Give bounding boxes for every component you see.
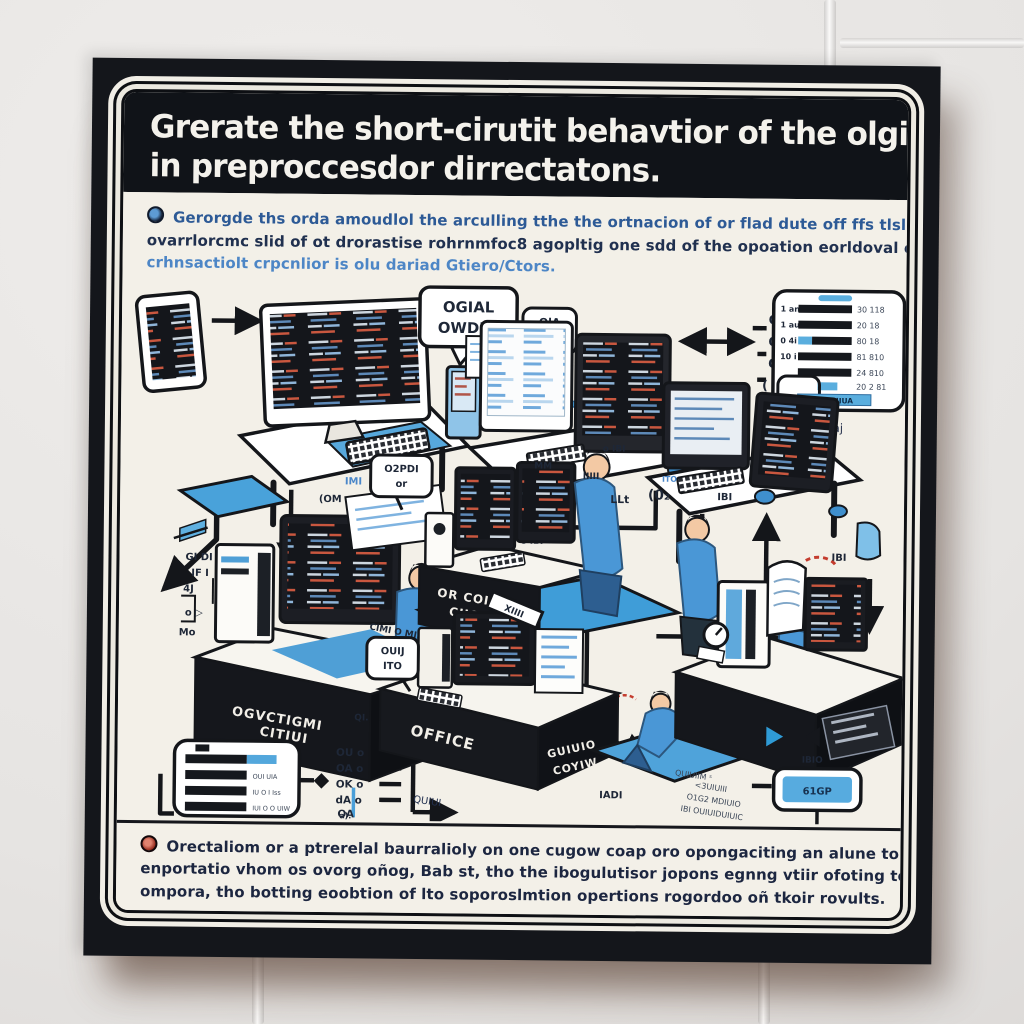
svg-text:OK o: OK o (336, 778, 364, 790)
tiled-wall: Grerate the short-cirutit behavtior of t… (0, 0, 1024, 1024)
svg-text:or: or (395, 478, 407, 489)
note-text-block: QUIUIIM ˢ <3UIUIII O1G2 MDIUIO IBI OUIUI… (674, 768, 745, 822)
label-iadi: IADI (599, 790, 622, 801)
svg-text:OU o: OU o (336, 746, 364, 758)
svg-text:1 an: 1 an (781, 304, 801, 313)
label: LLt (610, 492, 629, 505)
label: MM (534, 461, 552, 471)
svg-text:OUI UIA: OUI UIA (253, 772, 278, 780)
label: (0₂ (648, 487, 670, 503)
button-label: 61GP (803, 786, 832, 797)
workstation-right (647, 382, 861, 563)
svg-text:IU O I Iss: IU O I Iss (252, 788, 281, 796)
svg-text:20 18: 20 18 (857, 321, 880, 330)
svg-text:o ▷: o ▷ (185, 607, 203, 618)
blue-bullet-icon (147, 206, 164, 223)
bubble-text: OGIAL (443, 297, 495, 316)
label: o IBI (603, 444, 626, 454)
label-qi: QI. (354, 713, 368, 723)
red-bullet-icon (140, 835, 157, 852)
label: ITO (662, 474, 677, 483)
svg-text:a).: a). (339, 811, 351, 820)
label: IBI (717, 492, 732, 503)
svg-text:24 810: 24 810 (856, 368, 884, 377)
svg-text:OUIJ: OUIJ (381, 646, 405, 657)
svg-text:4J: 4J (183, 583, 194, 594)
label-ibio: IBIO (802, 755, 824, 765)
tile-grout-line (252, 950, 264, 1024)
svg-text:GI DI: GI DI (185, 551, 212, 562)
svg-text:IUI O O UIW: IUI O O UIW (252, 804, 290, 812)
blue-chair (856, 522, 880, 559)
bottom-paragraph: Orectaliom or a ptrerelal baurralioly on… (116, 819, 901, 914)
label: IBI (832, 552, 847, 563)
blue-button: 61GP (773, 768, 861, 824)
label-imi: IMI (345, 476, 362, 487)
svg-text:O2PDI: O2PDI (384, 463, 419, 474)
title-band: Grerate the short-cirutit behavtior of t… (123, 92, 908, 200)
svg-text:30 118: 30 118 (857, 305, 885, 314)
tile-grout-line (840, 38, 1024, 48)
poster-content: Gerorgde ths orda amoudlol the arculling… (116, 192, 907, 918)
label: IIIII (583, 471, 600, 481)
top-paragraph: Gerorgde ths orda amoudlol the arculling… (122, 192, 907, 286)
svg-text:1 au: 1 au (780, 320, 799, 329)
svg-text:80 18: 80 18 (857, 337, 880, 346)
svg-text:dA o: dA o (336, 794, 362, 806)
poster: Grerate the short-cirutit behavtior of t… (83, 58, 940, 965)
svg-text:IF I: IF I (191, 567, 209, 578)
svg-text:81 810: 81 810 (856, 352, 884, 361)
junction-node (314, 773, 329, 788)
isometric-diagram: OGIAL OWDEL OlA OUR (117, 277, 909, 825)
svg-text:10 i: 10 i (780, 352, 797, 361)
label-om: (OM (319, 493, 342, 504)
svg-text:<3UIUIII: <3UIUIII (694, 780, 728, 794)
poster-inner-frame: Grerate the short-cirutit behavtior of t… (116, 92, 909, 918)
svg-text:ITO: ITO (383, 661, 402, 672)
tablet-device (135, 290, 207, 392)
branch-list: OU o OA o OK o dA o OA a). (335, 746, 364, 820)
svg-text:20 2 81: 20 2 81 (856, 382, 886, 391)
flag-list: GI DI IF I 4J o ▷ Mo (173, 519, 214, 638)
office-caption: QUIUI (412, 794, 441, 809)
svg-text:OA o: OA o (336, 762, 363, 774)
poster-title-line2: in preproccesdor dirrectatons. (149, 146, 859, 192)
checklist-panel: OUI UIA IU O I Iss IUI O O UIW (174, 740, 300, 817)
svg-text:Mo: Mo (179, 627, 196, 638)
svg-text:0 4i: 0 4i (780, 336, 797, 345)
